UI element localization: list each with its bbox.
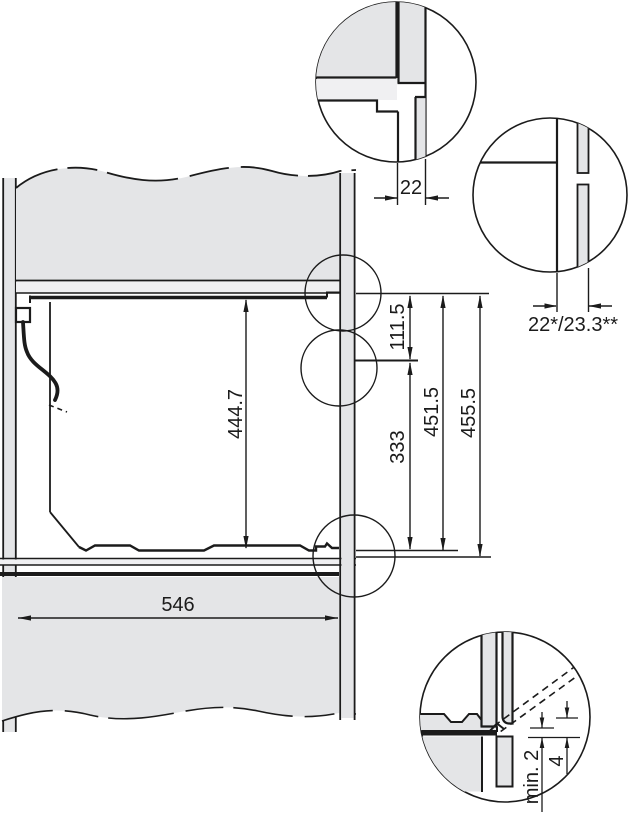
dim-label-bottom-section: 333 [387, 430, 409, 463]
upper-cabinet-panel [16, 167, 356, 303]
shelf-fill [0, 560, 356, 565]
arrow-up [243, 299, 248, 312]
dimension-455-5: 455.5 [458, 295, 483, 557]
detail-top-strip-fill [400, 0, 425, 83]
dimension-22: 22 [374, 159, 449, 205]
arrow-up [407, 362, 412, 375]
installation-diagram-page: 444.7 111.5 333 451.5 455.5 546 [0, 0, 636, 816]
appliance-niche [16, 302, 339, 551]
arrow-left-tip [589, 303, 602, 308]
niche-floor-line [79, 544, 339, 551]
detail-door-panel [503, 630, 513, 724]
dim-label-niche-height: 444.7 [225, 389, 247, 439]
arrow-up [440, 295, 445, 308]
dimension-444-7: 444.7 [225, 299, 249, 549]
arrow-up [477, 295, 482, 308]
detail-view-bottom: min. 2 4 [415, 630, 590, 812]
power-cable-dashed-end [49, 405, 67, 412]
detail-right-circle [473, 118, 627, 272]
dim-label-niche-width: 546 [161, 594, 194, 616]
dim-label-front-depth: 22 [400, 177, 422, 199]
ceiling-right-step [327, 293, 340, 298]
detail-marker-front-joint [301, 330, 377, 406]
dimension-451-5: 451.5 [421, 295, 446, 551]
detail-strip-lower [578, 185, 589, 285]
detail-lower-block-b [497, 737, 513, 787]
dimension-111-5: 111.5 [387, 295, 413, 360]
dim-label-front-depth-variants: 22*/23.3** [528, 314, 618, 336]
arrow-right-tip [545, 303, 558, 308]
installation-diagram: 444.7 111.5 333 451.5 455.5 546 [0, 0, 636, 816]
detail-upper-panel-fill [312, 0, 396, 77]
dim-label-top-section: 111.5 [387, 303, 409, 350]
dim-label-base-offset: 4 [546, 755, 568, 766]
detail-front-strip-fill [483, 630, 497, 726]
detail-shelf-fill [312, 79, 397, 100]
arrow-left-tip [426, 195, 439, 200]
bottom-shelf [0, 559, 356, 575]
detail-strip-upper [578, 100, 589, 173]
arrow-right-tip [385, 195, 398, 200]
mains-connection-box [16, 308, 30, 322]
dim-label-opening-a: 451.5 [421, 387, 443, 437]
top-shelf-fill [16, 282, 340, 293]
arrow-down [440, 538, 445, 551]
detail-lower-block-a [415, 737, 482, 792]
main-section-view [0, 167, 418, 732]
power-cable [23, 322, 58, 400]
dimension-22-23-3: 22*/23.3** [528, 268, 618, 336]
upper-panel-fill [16, 167, 340, 280]
dim-label-min-clearance: min. 2 [521, 750, 543, 804]
detail-front-gray-fill [416, 97, 426, 165]
niche-left-chamfer [50, 512, 79, 547]
arrow-down [477, 544, 482, 557]
arrow-down [407, 537, 412, 550]
arrow-down [243, 536, 248, 549]
detail-view-right: 22*/23.3** [470, 100, 627, 336]
dimension-333: 333 [387, 362, 413, 550]
dim-label-opening-b: 455.5 [458, 388, 480, 438]
